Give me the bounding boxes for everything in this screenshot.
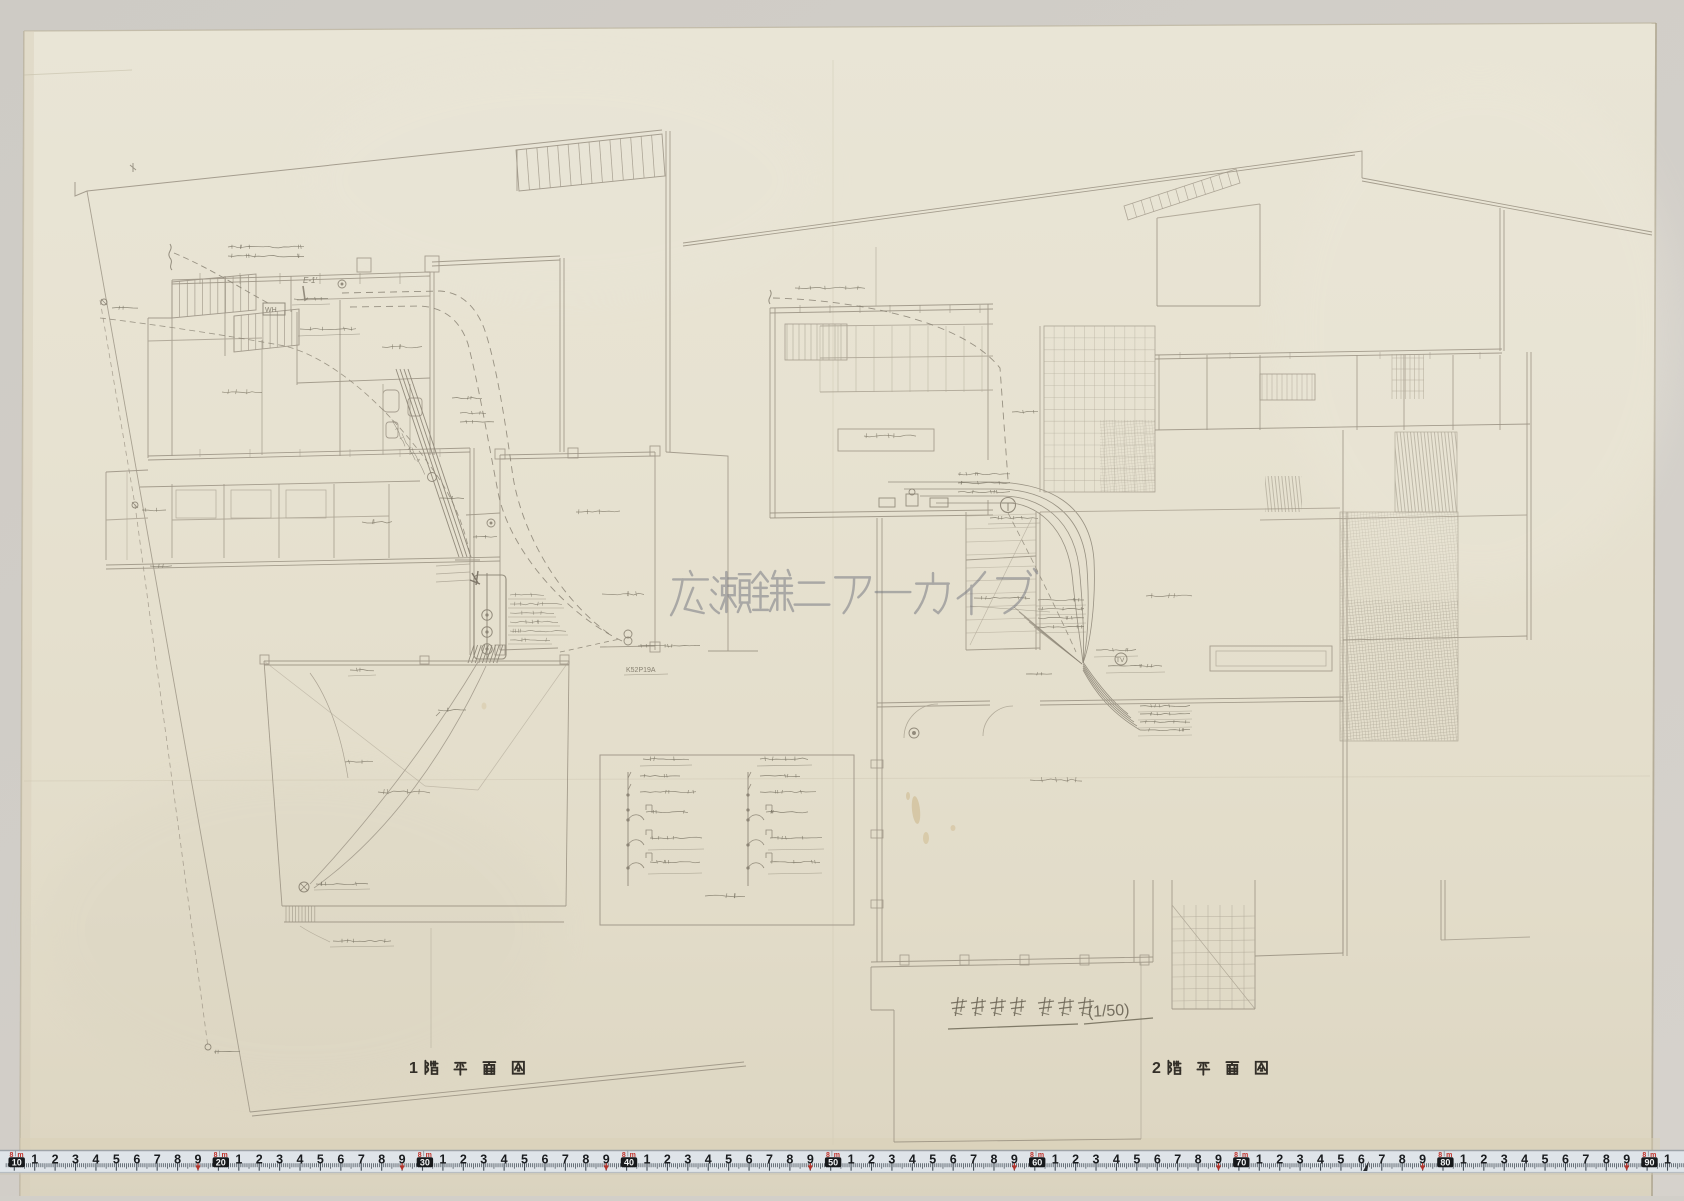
svg-text:50: 50 bbox=[828, 1158, 838, 1168]
svg-text:90: 90 bbox=[1644, 1158, 1654, 1168]
svg-text:8: 8 bbox=[991, 1153, 998, 1167]
svg-text:7: 7 bbox=[1582, 1153, 1589, 1167]
svg-text:5: 5 bbox=[1133, 1153, 1140, 1167]
svg-text:3: 3 bbox=[1297, 1153, 1304, 1167]
svg-text:2: 2 bbox=[1152, 1060, 1161, 1077]
svg-text:6: 6 bbox=[133, 1153, 140, 1167]
svg-text:4: 4 bbox=[909, 1153, 916, 1167]
svg-text:6: 6 bbox=[1358, 1153, 1365, 1167]
svg-text:2: 2 bbox=[1072, 1153, 1079, 1167]
svg-text:1: 1 bbox=[644, 1153, 651, 1167]
svg-text:1: 1 bbox=[1256, 1153, 1263, 1167]
svg-text:2: 2 bbox=[460, 1153, 467, 1167]
svg-text:1: 1 bbox=[1052, 1153, 1059, 1167]
svg-text:2: 2 bbox=[256, 1153, 263, 1167]
svg-text:4: 4 bbox=[705, 1153, 712, 1167]
svg-text:8: 8 bbox=[1030, 1152, 1034, 1159]
svg-text:3: 3 bbox=[480, 1153, 487, 1167]
svg-text:7: 7 bbox=[358, 1153, 365, 1167]
svg-text:6: 6 bbox=[1154, 1153, 1161, 1167]
svg-text:1: 1 bbox=[31, 1153, 38, 1167]
svg-text:8: 8 bbox=[826, 1152, 830, 1159]
svg-text:m: m bbox=[834, 1152, 840, 1159]
svg-text:3: 3 bbox=[1093, 1153, 1100, 1167]
svg-text:m: m bbox=[1242, 1152, 1248, 1159]
svg-text:7: 7 bbox=[970, 1153, 977, 1167]
svg-text:5: 5 bbox=[725, 1153, 732, 1167]
svg-text:10: 10 bbox=[12, 1158, 22, 1168]
svg-text:7: 7 bbox=[562, 1153, 569, 1167]
svg-text:3: 3 bbox=[276, 1153, 283, 1167]
svg-text:5: 5 bbox=[113, 1153, 120, 1167]
svg-text:8: 8 bbox=[786, 1153, 793, 1167]
svg-text:m: m bbox=[630, 1152, 636, 1159]
svg-text:8: 8 bbox=[1234, 1152, 1238, 1159]
svg-text:4: 4 bbox=[1317, 1153, 1324, 1167]
svg-text:20: 20 bbox=[216, 1158, 226, 1168]
svg-text:8: 8 bbox=[214, 1152, 218, 1159]
svg-text:(1/50): (1/50) bbox=[1087, 1002, 1130, 1021]
svg-text:m: m bbox=[426, 1152, 432, 1159]
svg-text:3: 3 bbox=[888, 1153, 895, 1167]
svg-text:1: 1 bbox=[439, 1153, 446, 1167]
svg-text:4: 4 bbox=[501, 1153, 508, 1167]
svg-text:60: 60 bbox=[1032, 1158, 1042, 1168]
svg-text:4: 4 bbox=[297, 1153, 304, 1167]
svg-text:m: m bbox=[1038, 1152, 1044, 1159]
svg-text:8: 8 bbox=[1438, 1152, 1442, 1159]
svg-text:7: 7 bbox=[1174, 1153, 1181, 1167]
svg-text:6: 6 bbox=[542, 1153, 549, 1167]
svg-text:TV: TV bbox=[1116, 657, 1125, 664]
svg-text:5: 5 bbox=[1337, 1153, 1344, 1167]
svg-text:6: 6 bbox=[746, 1153, 753, 1167]
svg-text:8: 8 bbox=[378, 1153, 385, 1167]
svg-text:8: 8 bbox=[1603, 1153, 1610, 1167]
svg-text:30: 30 bbox=[420, 1158, 430, 1168]
svg-text:m: m bbox=[221, 1152, 227, 1159]
svg-text:2: 2 bbox=[52, 1153, 59, 1167]
svg-text:2: 2 bbox=[664, 1153, 671, 1167]
svg-text:m: m bbox=[1650, 1152, 1656, 1159]
svg-text:80: 80 bbox=[1440, 1158, 1450, 1168]
svg-text:4: 4 bbox=[92, 1153, 99, 1167]
svg-text:8: 8 bbox=[174, 1153, 181, 1167]
svg-text:6: 6 bbox=[950, 1153, 957, 1167]
svg-text:40: 40 bbox=[624, 1158, 634, 1168]
svg-text:8: 8 bbox=[1399, 1153, 1406, 1167]
svg-text:1: 1 bbox=[235, 1153, 242, 1167]
svg-text:8: 8 bbox=[622, 1152, 626, 1159]
svg-text:5: 5 bbox=[1542, 1153, 1549, 1167]
svg-text:5: 5 bbox=[929, 1153, 936, 1167]
svg-text:1: 1 bbox=[1460, 1153, 1467, 1167]
svg-text:8: 8 bbox=[10, 1152, 14, 1159]
svg-text:2: 2 bbox=[1276, 1153, 1283, 1167]
svg-text:1: 1 bbox=[1664, 1153, 1671, 1167]
svg-text:8: 8 bbox=[582, 1153, 589, 1167]
svg-text:6: 6 bbox=[337, 1153, 344, 1167]
svg-text:E-1': E-1' bbox=[303, 276, 317, 285]
svg-text:6: 6 bbox=[1562, 1153, 1569, 1167]
svg-text:K52P19A: K52P19A bbox=[626, 667, 656, 674]
svg-text:4: 4 bbox=[1521, 1153, 1528, 1167]
svg-text:1: 1 bbox=[848, 1153, 855, 1167]
svg-text:WH: WH bbox=[265, 307, 277, 314]
svg-text:m: m bbox=[17, 1152, 23, 1159]
svg-text:8: 8 bbox=[1642, 1152, 1646, 1159]
svg-text:1: 1 bbox=[409, 1060, 418, 1077]
svg-text:4: 4 bbox=[1113, 1153, 1120, 1167]
svg-text:3: 3 bbox=[72, 1153, 79, 1167]
svg-text:5: 5 bbox=[317, 1153, 324, 1167]
svg-text:8: 8 bbox=[1195, 1153, 1202, 1167]
svg-text:7: 7 bbox=[766, 1153, 773, 1167]
svg-text:70: 70 bbox=[1236, 1158, 1246, 1168]
svg-text:2: 2 bbox=[868, 1153, 875, 1167]
svg-text:7: 7 bbox=[154, 1153, 161, 1167]
svg-text:2: 2 bbox=[1480, 1153, 1487, 1167]
svg-text:5: 5 bbox=[521, 1153, 528, 1167]
svg-text:3: 3 bbox=[684, 1153, 691, 1167]
svg-text:7: 7 bbox=[1378, 1153, 1385, 1167]
svg-text:3: 3 bbox=[1501, 1153, 1508, 1167]
svg-text:m: m bbox=[1446, 1152, 1452, 1159]
svg-text:8: 8 bbox=[418, 1152, 422, 1159]
